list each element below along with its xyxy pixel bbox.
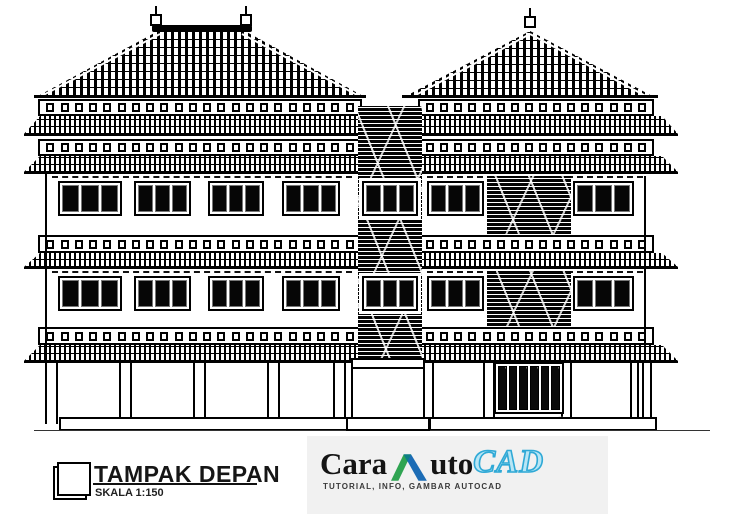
left-roof-ridge <box>152 25 252 32</box>
frieze-ornament <box>440 103 448 112</box>
drawing-scale: SKALA 1:150 <box>95 487 164 499</box>
window-group <box>573 276 634 311</box>
elevation-drawing: TAMPAK DEPAN SKALA 1:150 Cara uto CAD TU… <box>0 0 732 518</box>
frieze-ornament <box>146 143 154 152</box>
frieze-ornament <box>189 103 197 112</box>
frieze-ornament <box>426 143 434 152</box>
frieze-ornament <box>595 240 603 249</box>
frieze-ornament <box>610 143 618 152</box>
frieze-ornament <box>217 103 225 112</box>
ground-column <box>193 363 206 424</box>
frieze-ornament <box>497 332 505 341</box>
frieze-ornament <box>468 332 476 341</box>
frieze-ornament <box>203 332 211 341</box>
frieze-ornament <box>61 103 69 112</box>
window-pane <box>286 185 301 212</box>
lintel-dashed-line <box>52 176 352 178</box>
window-pane <box>431 280 446 307</box>
frieze-ornament <box>160 103 168 112</box>
frieze-ornament <box>189 143 197 152</box>
window-pane <box>399 185 414 212</box>
frieze-ornament <box>260 103 268 112</box>
logo-text-cad: CAD <box>473 446 544 479</box>
ground-column <box>333 363 346 424</box>
left-eave-tile-band <box>24 116 366 134</box>
frieze-ornament <box>89 103 97 112</box>
frieze-ornament <box>539 332 547 341</box>
left-eave-tile-band <box>24 253 366 267</box>
right-eave-edge-line <box>414 134 678 136</box>
left-eave-edge-line <box>24 267 366 269</box>
frieze-ornament <box>246 240 254 249</box>
right-eave-tile-band <box>414 345 678 361</box>
door-transom-line <box>353 367 423 369</box>
window-pane <box>399 280 414 307</box>
frieze-ornament <box>539 103 547 112</box>
frieze-ornament <box>232 240 240 249</box>
window-pane <box>448 185 463 212</box>
frieze-ornament <box>331 240 339 249</box>
logo-tagline: TUTORIAL, INFO, GAMBAR AUTOCAD <box>323 482 502 491</box>
frieze-ornament <box>160 240 168 249</box>
window-group <box>427 276 484 311</box>
frieze-ornament <box>483 143 491 152</box>
frieze-ornament <box>289 103 297 112</box>
window-pane <box>577 280 593 307</box>
frieze-ornament <box>203 143 211 152</box>
frieze-ornament <box>232 103 240 112</box>
left-eave-tile-band <box>24 345 366 361</box>
window-pane <box>62 185 79 212</box>
gate-slat <box>498 366 507 410</box>
window-pane <box>614 185 630 212</box>
frieze-ornament <box>525 143 533 152</box>
frieze-ornament <box>638 103 646 112</box>
right-frieze-band <box>418 99 654 116</box>
plinth-band <box>429 417 657 431</box>
frieze-ornament <box>511 332 519 341</box>
frieze-ornament <box>217 143 225 152</box>
frieze-ornament <box>289 240 297 249</box>
frieze-ornament <box>260 332 268 341</box>
tower-window-group <box>362 181 418 216</box>
right-frieze-band <box>418 327 654 345</box>
window-group <box>282 276 340 311</box>
frieze-ornament <box>46 103 54 112</box>
frieze-ornament <box>610 240 618 249</box>
frieze-ornament <box>638 143 646 152</box>
gate-slat <box>519 366 528 410</box>
frieze-ornament <box>426 332 434 341</box>
window-group <box>134 276 191 311</box>
frieze-ornament <box>581 143 589 152</box>
frieze-ornament <box>175 103 183 112</box>
frieze-ornament <box>46 240 54 249</box>
cara-autocad-logo: Cara uto CAD <box>320 446 544 479</box>
frieze-ornament <box>468 143 476 152</box>
frieze-ornament <box>160 143 168 152</box>
frieze-ornament <box>346 240 354 249</box>
frieze-ornament <box>175 332 183 341</box>
frieze-ornament <box>525 240 533 249</box>
window-pane <box>321 280 336 307</box>
left-roof-finial <box>240 14 252 26</box>
frieze-ornament <box>331 103 339 112</box>
autodesk-a-icon <box>391 451 429 481</box>
stone-clad-panel <box>487 176 571 235</box>
window-group <box>427 181 484 216</box>
slatted-gate <box>494 362 564 414</box>
window-group <box>208 276 264 311</box>
right-roof-finial <box>524 16 536 28</box>
window-pane <box>303 280 318 307</box>
frieze-ornament <box>483 332 491 341</box>
frieze-ornament <box>440 143 448 152</box>
window-pane <box>245 185 260 212</box>
frieze-ornament <box>289 332 297 341</box>
frieze-ornament <box>274 332 282 341</box>
frieze-ornament <box>61 240 69 249</box>
frieze-ornament <box>146 332 154 341</box>
window-pane <box>465 280 480 307</box>
frieze-ornament <box>610 332 618 341</box>
lintel-dashed-line <box>52 271 352 273</box>
frieze-ornament <box>132 103 140 112</box>
frieze-ornament <box>274 103 282 112</box>
gate-slat <box>530 366 539 410</box>
frieze-ornament <box>426 240 434 249</box>
window-pane <box>229 280 244 307</box>
frieze-ornament <box>553 103 561 112</box>
frieze-ornament <box>581 240 589 249</box>
frieze-ornament <box>289 143 297 152</box>
window-pane <box>172 185 187 212</box>
frieze-ornament <box>525 332 533 341</box>
frieze-ornament <box>189 332 197 341</box>
frieze-ornament <box>317 143 325 152</box>
frieze-ornament <box>317 240 325 249</box>
frieze-ornament <box>203 240 211 249</box>
logo-text-cara: Cara <box>320 448 387 479</box>
frieze-ornament <box>595 103 603 112</box>
frieze-ornament <box>75 240 83 249</box>
right-frieze-band <box>418 235 654 253</box>
frieze-ornament <box>525 103 533 112</box>
frieze-ornament <box>624 332 632 341</box>
frieze-ornament <box>175 240 183 249</box>
frieze-ornament <box>317 103 325 112</box>
frieze-ornament <box>75 143 83 152</box>
left-eave-tile-band <box>24 156 366 172</box>
entrance-step <box>346 417 430 431</box>
ground-column <box>119 363 132 424</box>
frieze-ornament <box>75 332 83 341</box>
ground-column <box>267 363 280 424</box>
window-pane <box>465 185 480 212</box>
frieze-ornament <box>624 240 632 249</box>
right-roof-eave-line <box>402 95 658 98</box>
window-pane <box>81 280 98 307</box>
ground-column <box>45 363 58 424</box>
ground-column <box>642 363 652 424</box>
window-pane <box>62 280 79 307</box>
central-tower <box>358 106 422 360</box>
window-group <box>58 181 122 216</box>
frieze-ornament <box>61 332 69 341</box>
right-eave-edge-line <box>414 172 678 174</box>
frieze-ornament <box>346 103 354 112</box>
gate-slat <box>509 366 518 410</box>
window-group <box>573 181 634 216</box>
frieze-ornament <box>595 143 603 152</box>
frieze-ornament <box>103 332 111 341</box>
frieze-ornament <box>175 143 183 152</box>
frieze-ornament <box>132 240 140 249</box>
frieze-ornament <box>497 103 505 112</box>
window-pane <box>138 185 153 212</box>
right-frieze-band <box>418 139 654 156</box>
tower-window-group <box>362 276 418 311</box>
frieze-ornament <box>440 240 448 249</box>
window-pane <box>303 185 318 212</box>
frieze-ornament <box>511 143 519 152</box>
frieze-ornament <box>89 240 97 249</box>
window-pane <box>614 280 630 307</box>
window-pane <box>383 185 398 212</box>
frieze-ornament <box>132 332 140 341</box>
window-pane <box>172 280 187 307</box>
frieze-ornament <box>497 143 505 152</box>
frieze-ornament <box>232 332 240 341</box>
frieze-ornament <box>553 143 561 152</box>
window-pane <box>431 185 446 212</box>
frieze-ornament <box>260 240 268 249</box>
frieze-ornament <box>203 103 211 112</box>
frieze-ornament <box>553 240 561 249</box>
frieze-ornament <box>232 143 240 152</box>
frieze-ornament <box>468 240 476 249</box>
ground-column <box>630 363 639 424</box>
left-frieze-band <box>38 235 362 253</box>
logo-text-uto: uto <box>430 448 473 479</box>
frieze-ornament <box>146 103 154 112</box>
title-underline <box>93 483 257 485</box>
stone-clad-panel <box>487 270 571 327</box>
right-eave-tile-band <box>414 116 678 134</box>
frieze-ornament <box>303 143 311 152</box>
frieze-ornament <box>553 332 561 341</box>
frieze-ornament <box>624 103 632 112</box>
window-pane <box>595 185 611 212</box>
frieze-ornament <box>89 143 97 152</box>
frieze-ornament <box>567 143 575 152</box>
window-pane <box>212 280 227 307</box>
frieze-ornament <box>75 103 83 112</box>
frieze-ornament <box>539 143 547 152</box>
frieze-ornament <box>511 103 519 112</box>
plinth-band <box>59 417 351 431</box>
frieze-ornament <box>595 332 603 341</box>
frieze-ornament <box>246 143 254 152</box>
window-pane <box>448 280 463 307</box>
frieze-ornament <box>46 143 54 152</box>
frieze-ornament <box>610 103 618 112</box>
left-roof-finial <box>150 14 162 26</box>
frieze-ornament <box>274 143 282 152</box>
entrance-door <box>351 358 425 420</box>
window-pane <box>366 185 381 212</box>
left-roof <box>38 30 363 96</box>
window-group <box>208 181 264 216</box>
frieze-ornament <box>483 103 491 112</box>
frieze-ornament <box>454 240 462 249</box>
frieze-ornament <box>274 240 282 249</box>
frieze-ornament <box>160 332 168 341</box>
frieze-ornament <box>118 332 126 341</box>
left-eave-edge-line <box>24 134 366 136</box>
left-frieze-band <box>38 99 362 116</box>
frieze-ornament <box>454 103 462 112</box>
frieze-ornament <box>346 143 354 152</box>
gate-slat <box>551 366 560 410</box>
left-roof-eave-line <box>34 95 366 98</box>
window-pane <box>101 185 118 212</box>
frieze-ornament <box>624 143 632 152</box>
right-eave-tile-band <box>414 156 678 172</box>
left-eave-edge-line <box>24 172 366 174</box>
window-pane <box>383 280 398 307</box>
frieze-ornament <box>46 332 54 341</box>
window-group <box>134 181 191 216</box>
window-group <box>58 276 122 311</box>
frieze-ornament <box>454 143 462 152</box>
window-pane <box>81 185 98 212</box>
frieze-ornament <box>483 240 491 249</box>
frieze-ornament <box>331 332 339 341</box>
left-frieze-band <box>38 139 362 156</box>
window-pane <box>321 185 336 212</box>
window-group <box>282 181 340 216</box>
frieze-ornament <box>454 332 462 341</box>
frieze-ornament <box>317 332 325 341</box>
frieze-ornament <box>103 240 111 249</box>
frieze-ornament <box>118 103 126 112</box>
right-roof <box>404 31 654 97</box>
window-pane <box>101 280 118 307</box>
window-pane <box>245 280 260 307</box>
frieze-ornament <box>511 240 519 249</box>
window-pane <box>212 185 227 212</box>
frieze-ornament <box>118 240 126 249</box>
frieze-ornament <box>468 103 476 112</box>
frieze-ornament <box>426 103 434 112</box>
window-pane <box>595 280 611 307</box>
right-eave-edge-line <box>414 267 678 269</box>
window-pane <box>138 280 153 307</box>
frieze-ornament <box>567 332 575 341</box>
frieze-ornament <box>61 143 69 152</box>
window-pane <box>155 185 170 212</box>
frieze-ornament <box>539 240 547 249</box>
frieze-ornament <box>189 240 197 249</box>
frieze-ornament <box>303 332 311 341</box>
frieze-ornament <box>346 332 354 341</box>
window-pane <box>577 185 593 212</box>
frieze-ornament <box>303 103 311 112</box>
frieze-ornament <box>246 332 254 341</box>
frieze-ornament <box>303 240 311 249</box>
frieze-ornament <box>217 332 225 341</box>
frieze-ornament <box>89 332 97 341</box>
left-frieze-band <box>38 327 362 345</box>
right-eave-tile-band <box>414 253 678 267</box>
frieze-ornament <box>103 103 111 112</box>
frieze-ornament <box>246 103 254 112</box>
frieze-ornament <box>581 103 589 112</box>
frieze-ornament <box>103 143 111 152</box>
window-pane <box>286 280 301 307</box>
frieze-ornament <box>440 332 448 341</box>
frieze-ornament <box>497 240 505 249</box>
frieze-ornament <box>132 143 140 152</box>
frieze-ornament <box>567 103 575 112</box>
frieze-ornament <box>260 143 268 152</box>
window-pane <box>229 185 244 212</box>
gate-slat <box>541 366 550 410</box>
frieze-ornament <box>331 143 339 152</box>
window-pane <box>366 280 381 307</box>
window-pane <box>155 280 170 307</box>
title-block-symbol <box>57 462 91 496</box>
frieze-ornament <box>217 240 225 249</box>
frieze-ornament <box>146 240 154 249</box>
frieze-ornament <box>118 143 126 152</box>
frieze-ornament <box>581 332 589 341</box>
frieze-ornament <box>567 240 575 249</box>
